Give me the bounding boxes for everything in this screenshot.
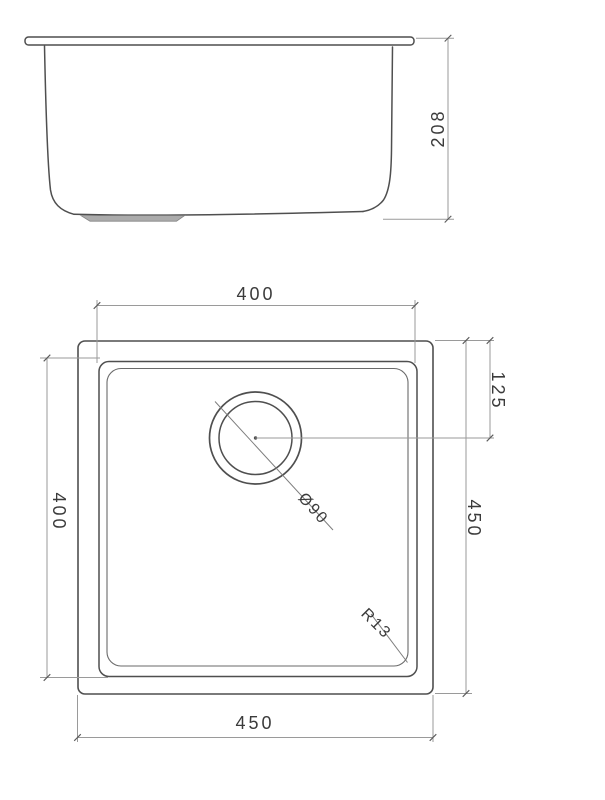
- bowl-height-label: 400: [49, 492, 69, 531]
- overall-height-dimension: 450: [435, 337, 494, 697]
- drain-base-pad: [81, 216, 185, 222]
- side-view: 208: [25, 35, 454, 223]
- sink-bottom: [74, 212, 363, 216]
- sink-left-wall: [45, 46, 75, 214]
- corner-radius-callout: R13: [357, 605, 407, 662]
- sink-rim: [25, 37, 414, 45]
- drawing-sheet: 208 Ø90 R13 400: [0, 0, 605, 800]
- drain-offset-label: 125: [488, 371, 508, 410]
- bowl-width-label: 400: [236, 284, 275, 304]
- drain-offset-dimension: 125: [256, 337, 509, 441]
- depth-dimension-label: 208: [428, 108, 448, 147]
- depth-dimension: 208: [383, 35, 454, 223]
- overall-width-dimension: 450: [74, 695, 436, 742]
- sink-outer-edge: [78, 341, 433, 694]
- drain: Ø90: [210, 392, 334, 530]
- overall-width-label: 450: [235, 713, 274, 733]
- corner-radius-label: R13: [357, 605, 394, 642]
- sink-technical-drawing: 208 Ø90 R13 400: [0, 0, 605, 800]
- bowl-height-dimension: 400: [40, 355, 108, 681]
- overall-height-label: 450: [464, 499, 484, 538]
- sink-right-wall: [363, 47, 393, 212]
- bowl-width-dimension: 400: [94, 284, 419, 363]
- plan-view: Ø90 R13 400 400: [40, 284, 508, 742]
